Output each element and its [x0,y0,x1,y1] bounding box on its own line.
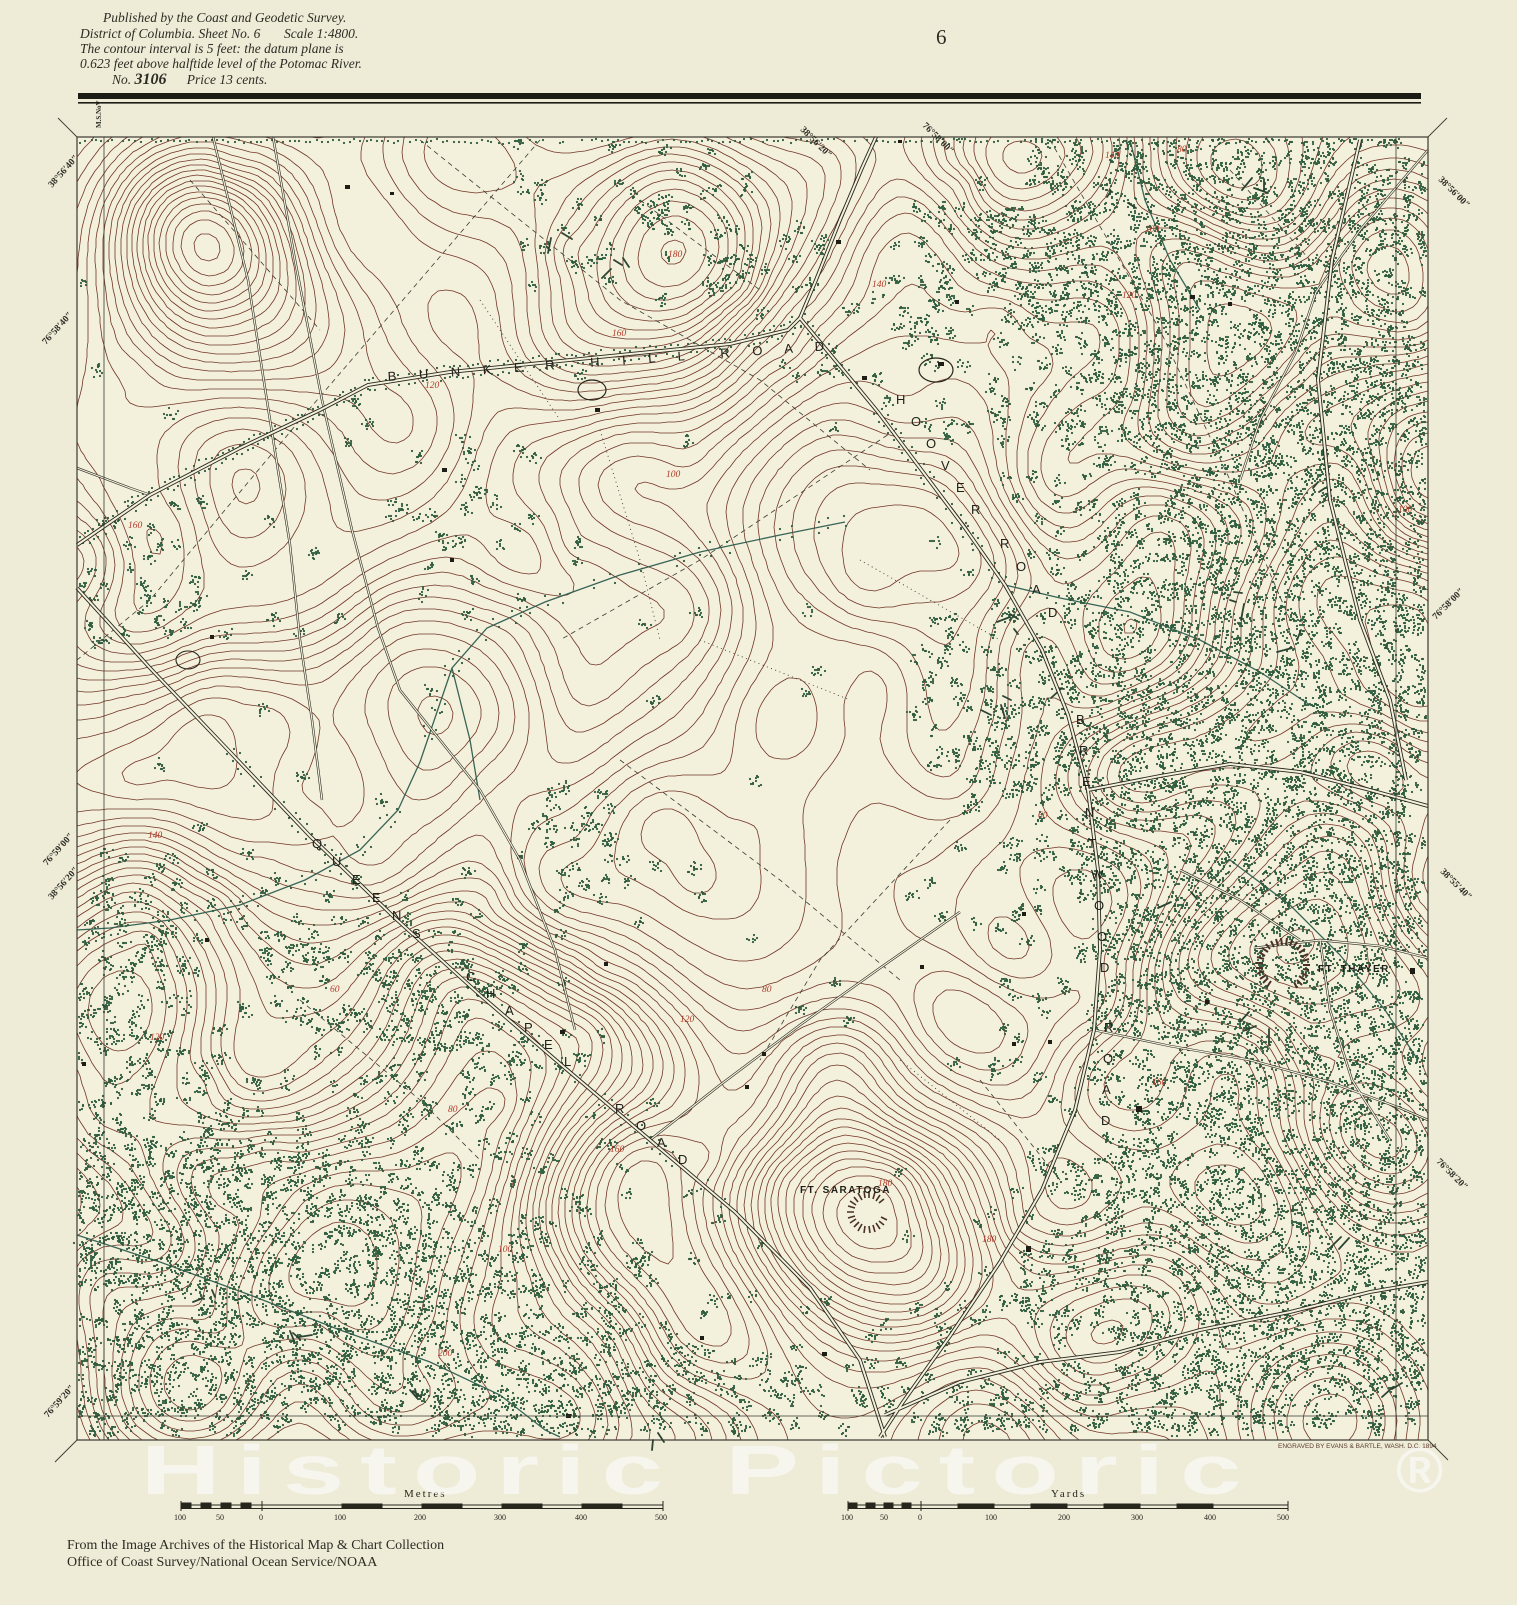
svg-text:FT. THAYER: FT. THAYER [1318,964,1390,975]
svg-text:100: 100 [841,1513,853,1522]
svg-text:80: 80 [448,1105,458,1115]
svg-text:100: 100 [174,1513,186,1522]
svg-text:180: 180 [668,250,683,260]
svg-text:O: O [926,436,936,451]
svg-text:D: D [1048,605,1057,620]
svg-text:0.623 feet above halftide leve: 0.623 feet above halftide level of the P… [80,56,362,71]
svg-text:T: T [1088,836,1096,851]
svg-text:E: E [544,1037,553,1052]
svg-text:E: E [372,890,381,905]
svg-text:120: 120 [425,381,440,391]
svg-text:E: E [1082,774,1091,789]
svg-text:80: 80 [1177,145,1187,155]
svg-text:H: H [896,392,905,407]
svg-text:6: 6 [936,25,947,49]
svg-text:W: W [1091,867,1104,882]
svg-text:160: 160 [128,521,143,531]
svg-text:R: R [1000,536,1009,551]
svg-text:0: 0 [918,1513,922,1522]
svg-text:®: ® [1396,1434,1443,1506]
svg-text:50: 50 [880,1513,888,1522]
svg-text:No. 3106 Price 13 cents.: No. 3106 Price 13 cents. [111,71,267,88]
svg-text:A: A [1032,582,1041,597]
svg-text:50: 50 [216,1513,224,1522]
svg-text:From the Image Archives of the: From the Image Archives of the Historica… [67,1538,444,1553]
svg-text:A: A [657,1135,666,1150]
svg-text:140: 140 [148,831,163,841]
svg-text:R: R [971,502,980,517]
svg-text:180: 180 [878,1179,893,1189]
svg-text:100: 100 [985,1513,997,1522]
svg-text:140: 140 [1105,151,1120,161]
svg-text:160: 160 [610,1145,625,1155]
svg-text:O: O [1103,1051,1113,1066]
svg-text:A: A [505,1003,514,1018]
svg-text:D: D [1101,1113,1110,1128]
svg-text:120: 120 [680,1015,695,1025]
svg-text:80: 80 [762,985,772,995]
svg-text:200: 200 [438,1349,453,1359]
svg-text:O: O [1097,929,1107,944]
svg-text:R: R [615,1101,624,1116]
svg-text:O: O [1016,559,1026,574]
svg-text:L: L [564,1054,571,1069]
svg-text:O: O [911,414,921,429]
svg-text:Q: Q [312,836,322,851]
svg-text:200: 200 [414,1513,426,1522]
svg-text:D: D [1100,960,1109,975]
svg-text:The contour interval is 5 feet: The contour interval is 5 feet: the datu… [80,41,344,56]
svg-text:V: V [941,458,950,473]
svg-text:Office of Coast Survey/Nationa: Office of Coast Survey/National Ocean Se… [67,1555,378,1570]
svg-text:500: 500 [655,1513,667,1522]
svg-text:D: D [678,1152,687,1167]
svg-text:100: 100 [498,1245,513,1255]
svg-text:A: A [1102,1082,1111,1097]
svg-text:P: P [524,1020,533,1035]
svg-text:400: 400 [575,1513,587,1522]
svg-text:O: O [636,1118,646,1133]
svg-text:0: 0 [259,1513,263,1522]
svg-text:H: H [486,986,495,1001]
svg-text:R: R [1079,743,1088,758]
svg-text:120: 120 [1122,291,1137,301]
svg-text:300: 300 [494,1513,506,1522]
svg-text:300: 300 [1131,1513,1143,1522]
svg-text:120: 120 [150,1033,165,1043]
svg-text:180: 180 [982,1235,997,1245]
svg-text:Historic Pictoric: Historic Pictoric [141,1430,1258,1509]
svg-text:140: 140 [872,280,887,290]
svg-text:District of Columbia. Sheet No: District of Columbia. Sheet No. 6 Scale … [79,26,358,41]
svg-text:200: 200 [1058,1513,1070,1522]
svg-text:160: 160 [612,329,627,339]
svg-text:100: 100 [666,470,681,480]
svg-text:U: U [332,854,341,869]
svg-text:400: 400 [1204,1513,1216,1522]
svg-text:100: 100 [1145,225,1160,235]
svg-text:500: 500 [1277,1513,1289,1522]
svg-text:N: N [392,908,401,923]
svg-text:60: 60 [330,985,340,995]
svg-text:60: 60 [1038,811,1048,821]
svg-text:M.S.NoV: M.S.NoV [95,100,103,128]
svg-text:S: S [412,926,421,941]
svg-text:N: N [1085,805,1094,820]
svg-text:R: R [1104,1020,1113,1035]
svg-text:Published by the Coast and Geo: Published by the Coast and Geodetic Surv… [102,10,346,25]
svg-text:E: E [956,480,965,495]
svg-text:B: B [1076,712,1085,727]
svg-text:160: 160 [1152,1078,1167,1088]
svg-text:100: 100 [334,1513,346,1522]
svg-text:100: 100 [1398,505,1413,515]
svg-text:O: O [1094,898,1104,913]
svg-text:C: C [466,969,475,984]
svg-text:E: E [352,872,361,887]
